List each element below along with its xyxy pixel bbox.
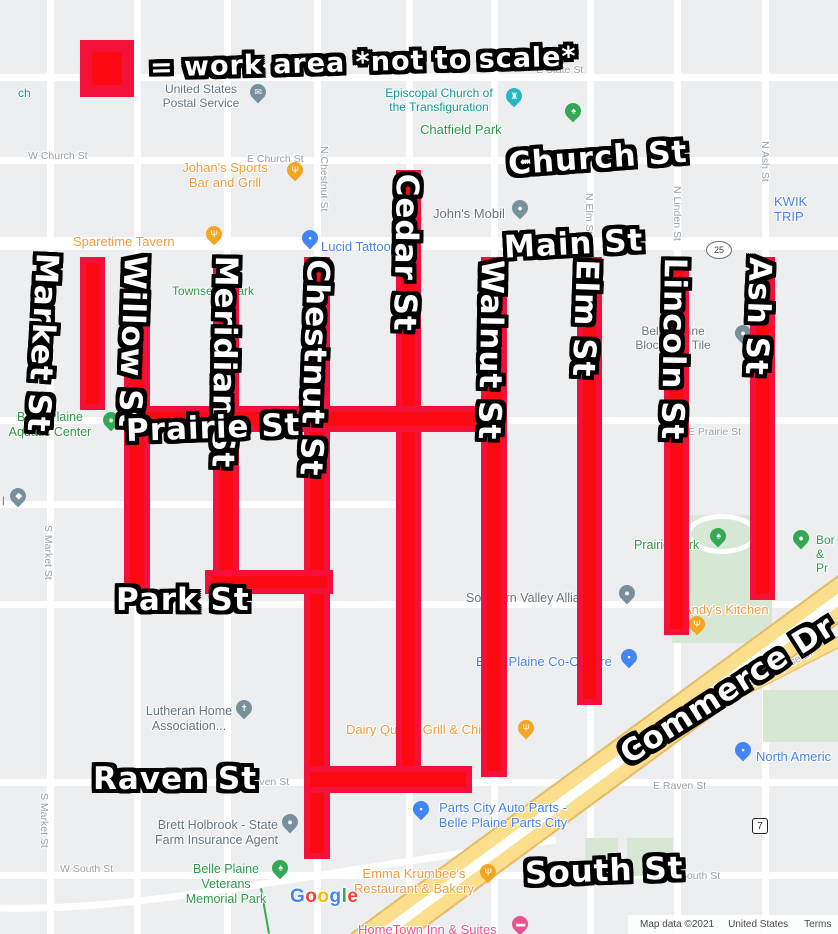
poi-emma-krumbees[interactable]: Emma Krumbee's Restaurant & Bakery: [348, 866, 480, 897]
tree-icon: ♠: [716, 532, 721, 541]
fork-icon: Ψ: [291, 166, 299, 175]
poi-usps[interactable]: United States Postal Service: [155, 82, 247, 110]
church-tower-icon: ♜: [510, 92, 518, 101]
street-label-n-chestnut: N Chestnut St: [318, 146, 330, 211]
google-letter: e: [347, 886, 358, 907]
annotated-map: ch ♠ Chatfield Park E State St ✉ United …: [0, 0, 838, 934]
poi-north-america-cutoff[interactable]: North Americ: [756, 749, 831, 764]
cutoff-label: ch: [18, 86, 31, 100]
dot-icon: ●: [287, 818, 292, 827]
google-letter: G: [290, 886, 305, 907]
work-area-market: [80, 257, 105, 410]
fork-icon: Ψ: [484, 868, 492, 877]
fork-icon: Ψ: [693, 620, 701, 629]
street-label-w-church: W Church St: [28, 150, 88, 162]
coop-pin-icon[interactable]: ▪: [618, 646, 641, 669]
chatfield-park-pin-icon[interactable]: ♠: [562, 100, 585, 123]
usps-pin-icon[interactable]: ✉: [247, 81, 270, 104]
bag-icon: ▪: [419, 805, 422, 814]
dot-icon: ●: [798, 534, 803, 543]
big-label-prairie: Prairie St: [125, 407, 301, 449]
terms-link[interactable]: Terms: [804, 919, 831, 930]
street-label-s-market-1: S Market St: [42, 525, 54, 580]
region-text: United States: [728, 919, 788, 930]
big-label-ash: Ash St: [738, 257, 778, 377]
big-label-chestnut: Chestnut St: [292, 259, 336, 477]
big-label-market: Market St: [20, 252, 65, 433]
big-label-elm: Elm St: [565, 259, 605, 378]
poi-hometown-cutoff[interactable]: HomeTown Inn & Suites: [358, 922, 497, 934]
poi-sparetime[interactable]: Sparetime Tavern: [73, 234, 175, 249]
big-label-main: Main St: [503, 222, 644, 265]
street-label-e-prairie: E Prairie St: [688, 426, 741, 438]
episcopal-church-pin-icon[interactable]: ♜: [503, 85, 526, 108]
fork-icon: Ψ: [522, 724, 530, 733]
street-label-n-linden: N Linden St: [671, 186, 683, 241]
graduation-icon: ◆: [15, 492, 22, 501]
google-letter: o: [305, 886, 317, 907]
big-label-cedar: Cedar St: [386, 173, 425, 332]
poi-borders-cutoff[interactable]: Bor & Pr: [816, 533, 838, 575]
route-25-shield: 25: [706, 241, 732, 259]
poi-parts-city[interactable]: Parts City Auto Parts - Belle Plaine Par…: [433, 800, 573, 831]
big-label-willow: Willow St: [111, 255, 153, 429]
poi-andys-kitchen[interactable]: Andy's Kitchen: [683, 602, 769, 617]
street-label-n-ash: N Ash St: [759, 141, 771, 182]
bed-icon: ▬: [516, 920, 525, 929]
envelope-icon: ✉: [254, 88, 262, 97]
cutoff-label-school: l: [2, 494, 5, 508]
big-label-park: Park St: [116, 582, 250, 618]
route-7-shield: 7: [752, 818, 768, 834]
johns-mobil-pin-icon[interactable]: ●: [509, 197, 532, 220]
street-line: [0, 501, 420, 508]
big-label-south: South St: [524, 850, 684, 892]
north-america-pin-icon[interactable]: ▪: [732, 739, 755, 762]
bag-icon: ▪: [308, 234, 311, 243]
dot-icon: ●: [517, 204, 522, 213]
big-label-walnut: Walnut St: [471, 259, 510, 440]
poi-johns-mobil[interactable]: John's Mobil: [433, 206, 505, 221]
poi-episcopal-church[interactable]: Episcopal Church of the Transfiguration: [376, 86, 502, 114]
tree-icon: ♠: [278, 864, 283, 873]
map-attribution: Map data ©2021 United States Terms: [628, 915, 838, 934]
big-label-raven: Raven St: [93, 761, 257, 797]
poi-johans[interactable]: Johan's Sports Bar and Grill: [165, 160, 285, 191]
street-line: [0, 157, 838, 164]
work-area-raven: [304, 766, 472, 793]
tree-icon: ♠: [571, 107, 576, 116]
poi-kwik-trip[interactable]: KWIK TRIP: [774, 194, 838, 225]
legend-swatch: [80, 40, 134, 97]
big-label-church: Church St: [507, 134, 689, 182]
parts-city-pin-icon[interactable]: ▪: [410, 798, 433, 821]
green-area: [763, 690, 838, 742]
google-letter: o: [317, 886, 329, 907]
dairy-queen-pin-icon[interactable]: Ψ: [515, 717, 538, 740]
poi-chatfield-park[interactable]: Chatfield Park: [420, 122, 502, 137]
big-label-lincoln: Lincoln St: [654, 257, 693, 440]
street-label-s-market-2: S Market St: [38, 793, 50, 848]
bag-icon: ▪: [741, 746, 744, 755]
poi-lucid-tattoo[interactable]: Lucid Tattoo: [321, 239, 391, 254]
dot-icon: ●: [624, 589, 629, 598]
poi-lutheran[interactable]: Lutheran Home Association...: [134, 704, 244, 734]
fork-icon: Ψ: [210, 230, 218, 239]
street-label-w-south: W South St: [60, 863, 113, 875]
borders-pin-icon[interactable]: ●: [790, 527, 813, 550]
bag-icon: ▪: [627, 653, 630, 662]
poi-vets-park[interactable]: Belle Plaine Veterans Memorial Park: [182, 862, 270, 906]
poi-brett-holbrook[interactable]: Brett Holbrook - State Farm Insurance Ag…: [138, 818, 278, 848]
map-data-text: Map data ©2021: [640, 919, 714, 930]
google-letter: g: [330, 886, 342, 907]
google-logo[interactable]: Google: [290, 886, 358, 908]
street-label-e-raven-2: E Raven St: [653, 780, 706, 792]
